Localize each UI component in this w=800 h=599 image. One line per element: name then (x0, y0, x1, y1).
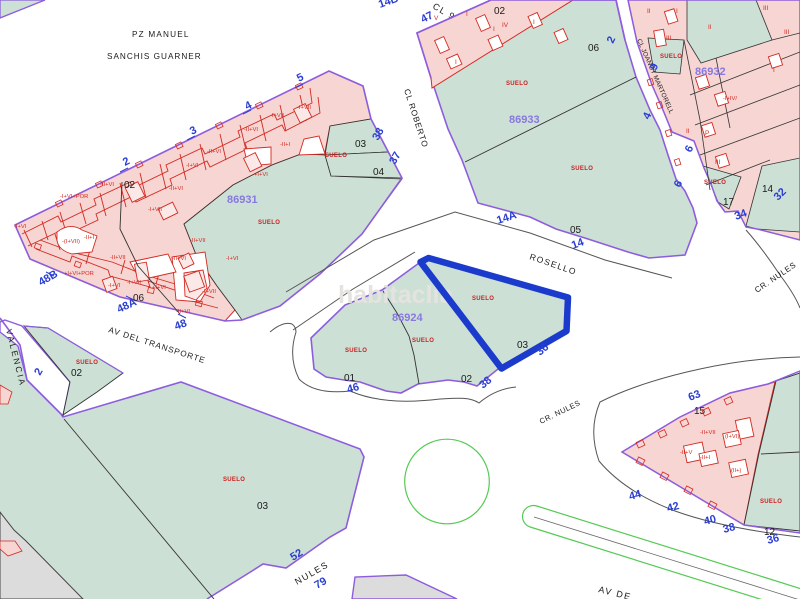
svg-text:III: III (666, 35, 672, 42)
svg-text:SUELO: SUELO (325, 153, 347, 159)
svg-text:86932: 86932 (695, 66, 726, 78)
svg-text:86931: 86931 (227, 194, 258, 206)
svg-text:86933: 86933 (509, 114, 540, 126)
svg-text:I: I (773, 67, 775, 74)
svg-text:-I+VI+POR: -I+VI+POR (60, 194, 88, 200)
svg-text:-II+V: -II+V (680, 450, 693, 456)
svg-text:I: I (533, 19, 535, 26)
svg-text:+I+VI+POR: +I+VI+POR (64, 271, 94, 277)
svg-text:-I+VI: -I+VI (108, 283, 121, 289)
svg-text:17: 17 (723, 197, 735, 208)
svg-text:-I+VII: -I+VII (202, 289, 216, 295)
svg-text:-I+VI: -I+VI (14, 224, 27, 230)
svg-text:I: I (466, 11, 468, 18)
svg-text:-II+I: -II+I (84, 235, 95, 241)
svg-text:-II+VII: -II+VII (190, 238, 206, 244)
svg-text:SUELO: SUELO (223, 477, 245, 483)
svg-text:+I+VI: +I+VI (254, 172, 268, 178)
svg-text:(I+VI): (I+VI) (725, 434, 739, 440)
svg-text:-I+VI: -I+VI (226, 256, 239, 262)
svg-text:05: 05 (570, 225, 582, 236)
svg-text:V: V (434, 15, 439, 22)
svg-text:III: III (715, 159, 721, 166)
svg-text:SUELO: SUELO (412, 338, 434, 344)
svg-text:-I+VI: -I+VI (186, 163, 199, 169)
svg-text:III: III (763, 5, 769, 12)
svg-text:SUELO: SUELO (571, 166, 593, 172)
svg-text:SUELO: SUELO (660, 54, 682, 60)
svg-text:02: 02 (494, 6, 506, 17)
svg-text:04: 04 (373, 167, 385, 178)
svg-text:-II+VII: -II+VII (700, 430, 716, 436)
svg-text:-I+VII: -I+VII (270, 113, 284, 119)
svg-text:SUELO: SUELO (760, 499, 782, 505)
svg-text:SUELO: SUELO (506, 81, 528, 87)
svg-text:III: III (784, 29, 790, 36)
svg-text:II: II (647, 8, 651, 15)
svg-text:-II+I: -II+I (700, 455, 711, 461)
svg-text:-I+VII: -I+VII (297, 105, 311, 111)
svg-text:-II+VI: -II+VI (244, 127, 258, 133)
svg-text:02: 02 (124, 180, 136, 191)
svg-text:-II+VII: -II+VII (110, 255, 126, 261)
svg-text:-II+VI: -II+VI (169, 186, 183, 192)
svg-text:SANCHIS GUARNER: SANCHIS GUARNER (107, 52, 202, 61)
svg-text:02: 02 (461, 374, 473, 385)
svg-text:SUELO: SUELO (472, 296, 494, 302)
svg-text:-(I+VII): -(I+VII) (62, 239, 80, 245)
svg-text:86924: 86924 (392, 312, 423, 324)
svg-text:-I+VII: -I+VII (127, 280, 141, 286)
svg-text:-II+VI: -II+VI (207, 149, 221, 155)
svg-text:(II+): (II+) (731, 468, 742, 474)
svg-text:03: 03 (517, 340, 529, 351)
svg-text:P: P (705, 130, 709, 137)
svg-text:SUELO: SUELO (258, 220, 280, 226)
svg-text:I: I (455, 59, 457, 66)
svg-text:PZ MANUEL: PZ MANUEL (132, 30, 190, 39)
svg-text:-I+VII: -I+VII (148, 207, 162, 213)
svg-text:SUELO: SUELO (345, 348, 367, 354)
svg-text:-I+IV/: -I+IV/ (723, 96, 737, 102)
svg-text:SUELO: SUELO (76, 360, 98, 366)
svg-text:-II+I: -II+I (280, 142, 291, 148)
svg-text:02: 02 (71, 368, 83, 379)
svg-text:SUELO: SUELO (704, 180, 726, 186)
svg-text:06: 06 (588, 43, 600, 54)
svg-text:I: I (493, 26, 495, 33)
svg-text:IV: IV (502, 22, 509, 29)
svg-text:II: II (708, 24, 712, 31)
svg-text:03: 03 (355, 139, 367, 150)
svg-text:I: I (676, 8, 678, 15)
svg-text:-II+VI: -II+VI (172, 256, 186, 262)
svg-text:II: II (686, 128, 690, 135)
svg-text:03: 03 (257, 501, 269, 512)
